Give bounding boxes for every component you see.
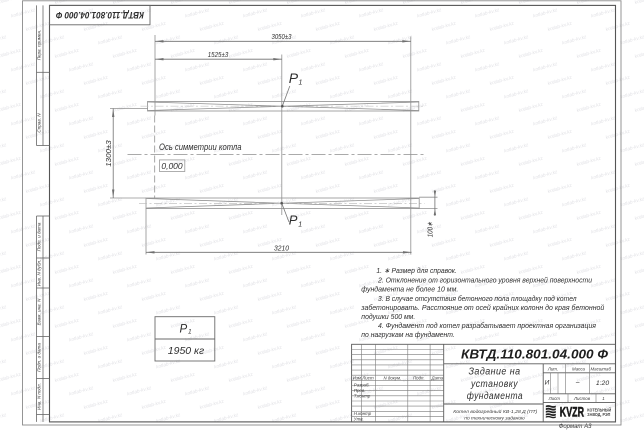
svg-text:kotlab-kv.kz: kotlab-kv.kz	[460, 156, 486, 168]
svg-text:kotlab-kv.kz: kotlab-kv.kz	[576, 264, 602, 276]
svg-text:kotlab-kv.kz: kotlab-kv.kz	[68, 169, 94, 181]
svg-text:kotlab-kv.kz: kotlab-kv.kz	[373, 75, 399, 87]
svg-text:Подп. и дата: Подп. и дата	[37, 222, 42, 251]
svg-text:kotlab-kv.kz: kotlab-kv.kz	[590, 277, 616, 289]
svg-text:kotlab-kv.kz: kotlab-kv.kz	[402, 156, 428, 168]
svg-text:kotlab-kv.kz: kotlab-kv.kz	[155, 412, 181, 424]
svg-text:Листов: Листов	[573, 396, 591, 401]
svg-text:kotlab-kv.kz: kotlab-kv.kz	[445, 250, 471, 262]
svg-text:kotlab-kv.kz: kotlab-kv.kz	[141, 75, 167, 87]
svg-text:kotlab-kv.kz: kotlab-kv.kz	[358, 61, 384, 73]
svg-text:kotlab-kv.kz: kotlab-kv.kz	[474, 61, 500, 73]
svg-text:kotlab-kv.kz: kotlab-kv.kz	[112, 102, 138, 114]
svg-text:kotlab-kv.kz: kotlab-kv.kz	[170, 372, 196, 384]
svg-text:kotlab-kv.kz: kotlab-kv.kz	[213, 250, 239, 262]
svg-text:kotlab-kv.kz: kotlab-kv.kz	[199, 183, 225, 195]
svg-text:kotlab-kv.kz: kotlab-kv.kz	[0, 0, 22, 6]
svg-text:kotlab-kv.kz: kotlab-kv.kz	[576, 210, 602, 222]
svg-text:kotlab-kv.kz: kotlab-kv.kz	[68, 385, 94, 397]
svg-text:kotlab-kv.kz: kotlab-kv.kz	[329, 304, 355, 316]
svg-text:Н.контр: Н.контр	[354, 411, 372, 416]
svg-text:kotlab-kv.kz: kotlab-kv.kz	[242, 223, 268, 235]
svg-text:kotlab-kv.kz: kotlab-kv.kz	[83, 183, 109, 195]
svg-text:kotlab-kv.kz: kotlab-kv.kz	[300, 385, 326, 397]
svg-text:kotlab-kv.kz: kotlab-kv.kz	[184, 277, 210, 289]
svg-text:kotlab-kv.kz: kotlab-kv.kz	[489, 21, 515, 33]
svg-text:kotlab-kv.kz: kotlab-kv.kz	[445, 88, 471, 100]
svg-text:kotlab-kv.kz: kotlab-kv.kz	[228, 210, 254, 222]
svg-text:kotlab-kv.kz: kotlab-kv.kz	[300, 277, 326, 289]
svg-text:kotlab-kv.kz: kotlab-kv.kz	[242, 277, 268, 289]
svg-text:kotlab-kv.kz: kotlab-kv.kz	[445, 34, 471, 46]
svg-text:kotlab-kv.kz: kotlab-kv.kz	[590, 61, 616, 73]
svg-text:kotlab-kv.kz: kotlab-kv.kz	[634, 156, 644, 168]
svg-text:kotlab-kv.kz: kotlab-kv.kz	[257, 291, 283, 303]
svg-text:P: P	[180, 323, 188, 335]
svg-text:kotlab-kv.kz: kotlab-kv.kz	[329, 88, 355, 100]
svg-text:kotlab-kv.kz: kotlab-kv.kz	[431, 75, 457, 87]
svg-text:kotlab-kv.kz: kotlab-kv.kz	[199, 21, 225, 33]
svg-text:kotlab-kv.kz: kotlab-kv.kz	[576, 48, 602, 60]
svg-text:kotlab-kv.kz: kotlab-kv.kz	[518, 372, 544, 384]
svg-text:kotlab-kv.kz: kotlab-kv.kz	[39, 412, 65, 424]
svg-text:kotlab-kv.kz: kotlab-kv.kz	[605, 291, 631, 303]
svg-text:Масса: Масса	[572, 367, 586, 372]
svg-text:1: 1	[188, 329, 192, 336]
svg-text:kotlab-kv.kz: kotlab-kv.kz	[213, 88, 239, 100]
svg-text:kotlab-kv.kz: kotlab-kv.kz	[184, 7, 210, 19]
svg-text:1300±3: 1300±3	[104, 139, 113, 166]
svg-text:kotlab-kv.kz: kotlab-kv.kz	[170, 210, 196, 222]
svg-text:kotlab-kv.kz: kotlab-kv.kz	[634, 48, 644, 60]
svg-text:kotlab-kv.kz: kotlab-kv.kz	[126, 331, 152, 343]
svg-text:КВТД.110.801.04.000 Ф: КВТД.110.801.04.000 Ф	[461, 346, 609, 361]
svg-text:kotlab-kv.kz: kotlab-kv.kz	[503, 250, 529, 262]
svg-text:kotlab-kv.kz: kotlab-kv.kz	[257, 183, 283, 195]
svg-text:kotlab-kv.kz: kotlab-kv.kz	[39, 358, 65, 370]
svg-text:kotlab-kv.kz: kotlab-kv.kz	[54, 210, 80, 222]
svg-text:kotlab-kv.kz: kotlab-kv.kz	[373, 345, 399, 357]
svg-text:Лист: Лист	[548, 396, 561, 401]
svg-text:kotlab-kv.kz: kotlab-kv.kz	[532, 115, 558, 127]
svg-text:kotlab-kv.kz: kotlab-kv.kz	[300, 331, 326, 343]
svg-text:kotlab-kv.kz: kotlab-kv.kz	[228, 264, 254, 276]
svg-text:Подп. и дата: Подп. и дата	[37, 343, 42, 372]
svg-text:kotlab-kv.kz: kotlab-kv.kz	[445, 142, 471, 154]
svg-text:kotlab-kv.kz: kotlab-kv.kz	[561, 88, 587, 100]
svg-text:Подп.: Подп.	[413, 375, 425, 380]
svg-text:kotlab-kv.kz: kotlab-kv.kz	[199, 399, 225, 411]
svg-text:kotlab-kv.kz: kotlab-kv.kz	[431, 237, 457, 249]
svg-text:Котел водогрейный КВ-1,28 Д (: Котел водогрейный КВ-1,28 Д (ПТ)	[453, 408, 537, 415]
svg-text:kotlab-kv.kz: kotlab-kv.kz	[605, 237, 631, 249]
svg-text:kotlab-kv.kz: kotlab-kv.kz	[547, 237, 573, 249]
svg-text:kotlab-kv.kz: kotlab-kv.kz	[460, 48, 486, 60]
svg-text:kotlab-kv.kz: kotlab-kv.kz	[474, 169, 500, 181]
svg-text:kotlab-kv.kz: kotlab-kv.kz	[10, 169, 36, 181]
svg-text:kotlab-kv.kz: kotlab-kv.kz	[315, 129, 341, 141]
svg-text:kotlab-kv.kz: kotlab-kv.kz	[315, 237, 341, 249]
svg-text:kotlab-kv.kz: kotlab-kv.kz	[242, 61, 268, 73]
svg-text:КВТД.110.801.04.000 Ф: КВТД.110.801.04.000 Ф	[56, 10, 144, 20]
svg-text:kotlab-kv.kz: kotlab-kv.kz	[97, 304, 123, 316]
svg-text:kotlab-kv.kz: kotlab-kv.kz	[329, 34, 355, 46]
svg-text:kotlab-kv.kz: kotlab-kv.kz	[97, 34, 123, 46]
svg-text:kotlab-kv.kz: kotlab-kv.kz	[0, 48, 22, 60]
svg-text:kotlab-kv.kz: kotlab-kv.kz	[39, 250, 65, 262]
svg-text:kotlab-kv.kz: kotlab-kv.kz	[300, 223, 326, 235]
svg-text:3. В случае отсутствия бетонно: 3. В случае отсутствия бетонного пола пл…	[378, 294, 577, 303]
svg-text:kotlab-kv.kz: kotlab-kv.kz	[0, 318, 22, 330]
svg-text:kotlab-kv.kz: kotlab-kv.kz	[576, 102, 602, 114]
svg-text:kotlab-kv.kz: kotlab-kv.kz	[344, 48, 370, 60]
svg-text:kotlab-kv.kz: kotlab-kv.kz	[271, 412, 297, 424]
svg-text:kotlab-kv.kz: kotlab-kv.kz	[199, 129, 225, 141]
svg-text:kotlab-kv.kz: kotlab-kv.kz	[0, 34, 8, 46]
svg-text:kotlab-kv.kz: kotlab-kv.kz	[126, 277, 152, 289]
svg-text:3050±3: 3050±3	[272, 32, 293, 41]
svg-text:kotlab-kv.kz: kotlab-kv.kz	[460, 102, 486, 114]
svg-text:kotlab-kv.kz: kotlab-kv.kz	[68, 223, 94, 235]
svg-text:kotlab-kv.kz: kotlab-kv.kz	[590, 223, 616, 235]
svg-text:kotlab-kv.kz: kotlab-kv.kz	[271, 88, 297, 100]
svg-text:kotlab-kv.kz: kotlab-kv.kz	[112, 318, 138, 330]
svg-text:kotlab-kv.kz: kotlab-kv.kz	[619, 88, 644, 100]
svg-text:kotlab-kv.kz: kotlab-kv.kz	[547, 183, 573, 195]
svg-text:kotlab-kv.kz: kotlab-kv.kz	[619, 358, 644, 370]
svg-text:kotlab-kv.kz: kotlab-kv.kz	[503, 142, 529, 154]
svg-text:kotlab-kv.kz: kotlab-kv.kz	[271, 358, 297, 370]
svg-text:kotlab-kv.kz: kotlab-kv.kz	[257, 345, 283, 357]
svg-text:kotlab-kv.kz: kotlab-kv.kz	[83, 345, 109, 357]
svg-text:kotlab-kv.kz: kotlab-kv.kz	[184, 385, 210, 397]
svg-text:kotlab-kv.kz: kotlab-kv.kz	[300, 115, 326, 127]
svg-text:kotlab-kv.kz: kotlab-kv.kz	[126, 223, 152, 235]
svg-text:kotlab-kv.kz: kotlab-kv.kz	[358, 169, 384, 181]
svg-text:kotlab-kv.kz: kotlab-kv.kz	[387, 88, 413, 100]
svg-text:по нагрузкам на фундамент.: по нагрузкам на фундамент.	[361, 330, 455, 339]
svg-text:1. ∗ Размер для справок.: 1. ∗ Размер для справок.	[376, 266, 457, 275]
svg-text:kotlab-kv.kz: kotlab-kv.kz	[10, 277, 36, 289]
svg-text:kotlab-kv.kz: kotlab-kv.kz	[561, 142, 587, 154]
svg-text:kotlab-kv.kz: kotlab-kv.kz	[344, 156, 370, 168]
svg-text:kotlab-kv.kz: kotlab-kv.kz	[10, 331, 36, 343]
svg-text:kotlab-kv.kz: kotlab-kv.kz	[474, 7, 500, 19]
svg-text:kotlab-kv.kz: kotlab-kv.kz	[271, 304, 297, 316]
svg-text:Т.контр: Т.контр	[354, 393, 371, 398]
svg-text:kotlab-kv.kz: kotlab-kv.kz	[83, 129, 109, 141]
svg-text:kotlab-kv.kz: kotlab-kv.kz	[489, 237, 515, 249]
svg-text:kotlab-kv.kz: kotlab-kv.kz	[344, 210, 370, 222]
svg-text:kotlab-kv.kz: kotlab-kv.kz	[518, 210, 544, 222]
svg-text:kotlab-kv.kz: kotlab-kv.kz	[199, 291, 225, 303]
svg-text:kotlab-kv.kz: kotlab-kv.kz	[634, 0, 644, 6]
svg-text:kotlab-kv.kz: kotlab-kv.kz	[10, 115, 36, 127]
svg-text:kotlab-kv.kz: kotlab-kv.kz	[0, 304, 8, 316]
svg-text:KVZR: KVZR	[560, 404, 584, 419]
svg-text:Справ. N: Справ. N	[37, 113, 42, 133]
svg-text:kotlab-kv.kz: kotlab-kv.kz	[97, 358, 123, 370]
svg-text:kotlab-kv.kz: kotlab-kv.kz	[242, 331, 268, 343]
svg-text:kotlab-kv.kz: kotlab-kv.kz	[474, 331, 500, 343]
svg-text:kotlab-kv.kz: kotlab-kv.kz	[373, 399, 399, 411]
svg-text:kotlab-kv.kz: kotlab-kv.kz	[0, 264, 22, 276]
svg-text:kotlab-kv.kz: kotlab-kv.kz	[416, 115, 442, 127]
svg-text:фундамента не более 10 мм.: фундамента не более 10 мм.	[361, 285, 458, 294]
svg-text:kotlab-kv.kz: kotlab-kv.kz	[561, 34, 587, 46]
svg-text:kotlab-kv.kz: kotlab-kv.kz	[257, 399, 283, 411]
svg-text:kotlab-kv.kz: kotlab-kv.kz	[0, 102, 22, 114]
svg-text:kotlab-kv.kz: kotlab-kv.kz	[329, 250, 355, 262]
svg-text:kotlab-kv.kz: kotlab-kv.kz	[39, 196, 65, 208]
svg-text:kotlab-kv.kz: kotlab-kv.kz	[590, 115, 616, 127]
svg-text:Дата: Дата	[431, 375, 444, 380]
svg-text:kotlab-kv.kz: kotlab-kv.kz	[0, 358, 8, 370]
svg-text:kotlab-kv.kz: kotlab-kv.kz	[286, 264, 312, 276]
svg-text:kotlab-kv.kz: kotlab-kv.kz	[358, 7, 384, 19]
svg-text:Утв.: Утв.	[354, 417, 364, 422]
svg-text:kotlab-kv.kz: kotlab-kv.kz	[503, 196, 529, 208]
svg-text:Перв. примен.: Перв. примен.	[37, 30, 42, 61]
svg-text:kotlab-kv.kz: kotlab-kv.kz	[416, 169, 442, 181]
svg-text:kotlab-kv.kz: kotlab-kv.kz	[547, 75, 573, 87]
svg-text:kotlab-kv.kz: kotlab-kv.kz	[184, 223, 210, 235]
svg-text:kotlab-kv.kz: kotlab-kv.kz	[402, 210, 428, 222]
svg-text:Инв. N дубл.: Инв. N дубл.	[37, 260, 42, 287]
svg-text:kotlab-kv.kz: kotlab-kv.kz	[431, 129, 457, 141]
svg-text:kotlab-kv.kz: kotlab-kv.kz	[460, 210, 486, 222]
svg-text:kotlab-kv.kz: kotlab-kv.kz	[0, 412, 8, 424]
svg-text:kotlab-kv.kz: kotlab-kv.kz	[141, 21, 167, 33]
svg-text:kotlab-kv.kz: kotlab-kv.kz	[286, 318, 312, 330]
svg-text:kotlab-kv.kz: kotlab-kv.kz	[590, 331, 616, 343]
svg-text:kotlab-kv.kz: kotlab-kv.kz	[286, 156, 312, 168]
svg-text:kotlab-kv.kz: kotlab-kv.kz	[155, 88, 181, 100]
svg-text:kotlab-kv.kz: kotlab-kv.kz	[213, 304, 239, 316]
svg-text:kotlab-kv.kz: kotlab-kv.kz	[83, 75, 109, 87]
svg-text:kotlab-kv.kz: kotlab-kv.kz	[25, 75, 51, 87]
svg-text:100∗: 100∗	[426, 221, 435, 237]
svg-text:kotlab-kv.kz: kotlab-kv.kz	[10, 385, 36, 397]
svg-text:kotlab-kv.kz: kotlab-kv.kz	[590, 169, 616, 181]
svg-text:Разраб.: Разраб.	[354, 383, 370, 388]
svg-text:kotlab-kv.kz: kotlab-kv.kz	[547, 21, 573, 33]
svg-text:kotlab-kv.kz: kotlab-kv.kz	[184, 61, 210, 73]
svg-text:kotlab-kv.kz: kotlab-kv.kz	[68, 61, 94, 73]
svg-text:2. Отклонение от горизонтально: 2. Отклонение от горизонтального уровня …	[377, 275, 593, 284]
svg-text:kotlab-kv.kz: kotlab-kv.kz	[576, 156, 602, 168]
svg-text:kotlab-kv.kz: kotlab-kv.kz	[518, 102, 544, 114]
svg-text:kotlab-kv.kz: kotlab-kv.kz	[315, 291, 341, 303]
svg-text:kotlab-kv.kz: kotlab-kv.kz	[619, 34, 644, 46]
svg-text:kotlab-kv.kz: kotlab-kv.kz	[416, 61, 442, 73]
svg-text:kotlab-kv.kz: kotlab-kv.kz	[25, 183, 51, 195]
svg-text:kotlab-kv.kz: kotlab-kv.kz	[503, 88, 529, 100]
svg-text:kotlab-kv.kz: kotlab-kv.kz	[213, 358, 239, 370]
svg-text:kotlab-kv.kz: kotlab-kv.kz	[300, 7, 326, 19]
svg-text:И: И	[545, 380, 550, 387]
svg-text:kotlab-kv.kz: kotlab-kv.kz	[489, 129, 515, 141]
svg-text:kotlab-kv.kz: kotlab-kv.kz	[97, 412, 123, 424]
svg-text:kotlab-kv.kz: kotlab-kv.kz	[54, 48, 80, 60]
svg-text:4. Фундамент под котел разраба: 4. Фундамент под котел разрабатывает про…	[378, 321, 596, 330]
svg-text:kotlab-kv.kz: kotlab-kv.kz	[83, 21, 109, 33]
svg-text:kotlab-kv.kz: kotlab-kv.kz	[141, 345, 167, 357]
svg-text:kotlab-kv.kz: kotlab-kv.kz	[97, 250, 123, 262]
svg-text:Взам. инв. N: Взам. инв. N	[37, 298, 42, 325]
svg-text:1: 1	[298, 222, 302, 229]
svg-text:kotlab-kv.kz: kotlab-kv.kz	[54, 156, 80, 168]
svg-text:kotlab-kv.kz: kotlab-kv.kz	[141, 399, 167, 411]
svg-text:kotlab-kv.kz: kotlab-kv.kz	[329, 142, 355, 154]
svg-text:kotlab-kv.kz: kotlab-kv.kz	[387, 250, 413, 262]
svg-text:kotlab-kv.kz: kotlab-kv.kz	[619, 412, 644, 424]
svg-text:kotlab-kv.kz: kotlab-kv.kz	[619, 250, 644, 262]
svg-text:kotlab-kv.kz: kotlab-kv.kz	[532, 7, 558, 19]
svg-text:kotlab-kv.kz: kotlab-kv.kz	[242, 169, 268, 181]
svg-text:–: –	[575, 380, 580, 387]
svg-text:kotlab-kv.kz: kotlab-kv.kz	[126, 169, 152, 181]
svg-text:kotlab-kv.kz: kotlab-kv.kz	[54, 318, 80, 330]
svg-text:1: 1	[299, 80, 303, 87]
svg-text:kotlab-kv.kz: kotlab-kv.kz	[286, 372, 312, 384]
svg-text:kotlab-kv.kz: kotlab-kv.kz	[489, 183, 515, 195]
svg-text:kotlab-kv.kz: kotlab-kv.kz	[315, 75, 341, 87]
svg-text:kotlab-kv.kz: kotlab-kv.kz	[503, 34, 529, 46]
svg-text:kotlab-kv.kz: kotlab-kv.kz	[634, 264, 644, 276]
svg-text:kotlab-kv.kz: kotlab-kv.kz	[170, 264, 196, 276]
svg-text:P: P	[289, 213, 298, 228]
svg-text:1: 1	[602, 396, 605, 401]
svg-text:по техническому заданию: по техническому заданию	[464, 416, 525, 422]
svg-text:kotlab-kv.kz: kotlab-kv.kz	[242, 7, 268, 19]
svg-text:kotlab-kv.kz: kotlab-kv.kz	[112, 264, 138, 276]
svg-text:Задание на: Задание на	[469, 367, 521, 378]
svg-text:Пров.: Пров.	[354, 388, 366, 393]
svg-text:Инв. N подл.: Инв. N подл.	[37, 383, 42, 410]
svg-text:kotlab-kv.kz: kotlab-kv.kz	[619, 196, 644, 208]
svg-text:kotlab-kv.kz: kotlab-kv.kz	[634, 102, 644, 114]
svg-text:kotlab-kv.kz: kotlab-kv.kz	[373, 237, 399, 249]
svg-text:kotlab-kv.kz: kotlab-kv.kz	[83, 237, 109, 249]
svg-text:kotlab-kv.kz: kotlab-kv.kz	[228, 318, 254, 330]
svg-text:kotlab-kv.kz: kotlab-kv.kz	[315, 399, 341, 411]
svg-text:kotlab-kv.kz: kotlab-kv.kz	[518, 264, 544, 276]
svg-text:kotlab-kv.kz: kotlab-kv.kz	[39, 34, 65, 46]
svg-text:kotlab-kv.kz: kotlab-kv.kz	[315, 183, 341, 195]
svg-text:kotlab-kv.kz: kotlab-kv.kz	[387, 34, 413, 46]
svg-text:kotlab-kv.kz: kotlab-kv.kz	[271, 142, 297, 154]
svg-text:kotlab-kv.kz: kotlab-kv.kz	[518, 156, 544, 168]
svg-text:kotlab-kv.kz: kotlab-kv.kz	[387, 412, 413, 424]
svg-text:kotlab-kv.kz: kotlab-kv.kz	[39, 142, 65, 154]
svg-text:P: P	[289, 70, 299, 86]
svg-text:kotlab-kv.kz: kotlab-kv.kz	[561, 196, 587, 208]
svg-text:kotlab-kv.kz: kotlab-kv.kz	[315, 345, 341, 357]
svg-text:kotlab-kv.kz: kotlab-kv.kz	[0, 250, 8, 262]
svg-text:kotlab-kv.kz: kotlab-kv.kz	[10, 223, 36, 235]
svg-text:kotlab-kv.kz: kotlab-kv.kz	[68, 115, 94, 127]
svg-text:kotlab-kv.kz: kotlab-kv.kz	[141, 129, 167, 141]
svg-text:kotlab-kv.kz: kotlab-kv.kz	[532, 169, 558, 181]
svg-text:kotlab-kv.kz: kotlab-kv.kz	[416, 7, 442, 19]
svg-text:kotlab-kv.kz: kotlab-kv.kz	[387, 142, 413, 154]
svg-text:N докум.: N докум.	[384, 375, 402, 380]
svg-text:kotlab-kv.kz: kotlab-kv.kz	[83, 399, 109, 411]
svg-text:kotlab-kv.kz: kotlab-kv.kz	[112, 210, 138, 222]
svg-text:kotlab-kv.kz: kotlab-kv.kz	[155, 358, 181, 370]
svg-text:kotlab-kv.kz: kotlab-kv.kz	[605, 129, 631, 141]
svg-text:kotlab-kv.kz: kotlab-kv.kz	[402, 102, 428, 114]
svg-text:kotlab-kv.kz: kotlab-kv.kz	[286, 102, 312, 114]
svg-text:kotlab-kv.kz: kotlab-kv.kz	[286, 48, 312, 60]
svg-text:0,000: 0,000	[161, 161, 183, 171]
svg-text:kotlab-kv.kz: kotlab-kv.kz	[39, 304, 65, 316]
svg-text:kotlab-kv.kz: kotlab-kv.kz	[242, 115, 268, 127]
svg-text:kotlab-kv.kz: kotlab-kv.kz	[54, 372, 80, 384]
svg-text:фундамента: фундамента	[467, 390, 523, 402]
svg-text:kotlab-kv.kz: kotlab-kv.kz	[561, 250, 587, 262]
svg-text:kotlab-kv.kz: kotlab-kv.kz	[155, 34, 181, 46]
svg-text:kotlab-kv.kz: kotlab-kv.kz	[112, 48, 138, 60]
svg-text:Лист: Лист	[361, 375, 374, 380]
svg-text:kotlab-kv.kz: kotlab-kv.kz	[141, 291, 167, 303]
svg-text:kotlab-kv.kz: kotlab-kv.kz	[605, 75, 631, 87]
svg-text:Масштаб: Масштаб	[590, 367, 611, 372]
svg-text:kotlab-kv.kz: kotlab-kv.kz	[0, 196, 8, 208]
svg-text:kotlab-kv.kz: kotlab-kv.kz	[315, 21, 341, 33]
svg-text:kotlab-kv.kz: kotlab-kv.kz	[460, 264, 486, 276]
svg-text:kotlab-kv.kz: kotlab-kv.kz	[532, 61, 558, 73]
svg-text:kotlab-kv.kz: kotlab-kv.kz	[634, 210, 644, 222]
svg-text:kotlab-kv.kz: kotlab-kv.kz	[184, 115, 210, 127]
svg-text:kotlab-kv.kz: kotlab-kv.kz	[0, 372, 22, 384]
svg-text:kotlab-kv.kz: kotlab-kv.kz	[112, 156, 138, 168]
svg-text:kotlab-kv.kz: kotlab-kv.kz	[402, 48, 428, 60]
svg-text:kotlab-kv.kz: kotlab-kv.kz	[358, 115, 384, 127]
svg-text:kotlab-kv.kz: kotlab-kv.kz	[445, 196, 471, 208]
svg-text:kotlab-kv.kz: kotlab-kv.kz	[68, 331, 94, 343]
svg-text:kotlab-kv.kz: kotlab-kv.kz	[474, 115, 500, 127]
svg-text:kotlab-kv.kz: kotlab-kv.kz	[0, 156, 22, 168]
svg-text:kotlab-kv.kz: kotlab-kv.kz	[373, 129, 399, 141]
svg-text:kotlab-kv.kz: kotlab-kv.kz	[344, 264, 370, 276]
svg-text:kotlab-kv.kz: kotlab-kv.kz	[126, 385, 152, 397]
svg-text:kotlab-kv.kz: kotlab-kv.kz	[10, 61, 36, 73]
svg-text:kotlab-kv.kz: kotlab-kv.kz	[518, 48, 544, 60]
svg-text:kotlab-kv.kz: kotlab-kv.kz	[257, 75, 283, 87]
svg-text:kotlab-kv.kz: kotlab-kv.kz	[634, 318, 644, 330]
svg-text:kotlab-kv.kz: kotlab-kv.kz	[228, 48, 254, 60]
svg-text:kotlab-kv.kz: kotlab-kv.kz	[228, 156, 254, 168]
svg-text:kotlab-kv.kz: kotlab-kv.kz	[532, 223, 558, 235]
svg-text:1:20: 1:20	[596, 380, 609, 387]
svg-text:kotlab-kv.kz: kotlab-kv.kz	[126, 61, 152, 73]
svg-text:kotlab-kv.kz: kotlab-kv.kz	[0, 142, 8, 154]
svg-text:Лит.: Лит.	[547, 367, 558, 372]
svg-text:3210: 3210	[274, 243, 290, 252]
svg-text:kotlab-kv.kz: kotlab-kv.kz	[97, 88, 123, 100]
svg-text:kotlab-kv.kz: kotlab-kv.kz	[300, 61, 326, 73]
svg-text:kotlab-kv.kz: kotlab-kv.kz	[112, 372, 138, 384]
svg-text:kotlab-kv.kz: kotlab-kv.kz	[474, 223, 500, 235]
svg-text:kotlab-kv.kz: kotlab-kv.kz	[39, 88, 65, 100]
svg-text:kotlab-kv.kz: kotlab-kv.kz	[126, 115, 152, 127]
svg-text:kotlab-kv.kz: kotlab-kv.kz	[242, 385, 268, 397]
svg-text:kotlab-kv.kz: kotlab-kv.kz	[10, 7, 36, 19]
svg-text:kotlab-kv.kz: kotlab-kv.kz	[431, 21, 457, 33]
svg-text:Формат А3: Формат А3	[559, 424, 592, 430]
